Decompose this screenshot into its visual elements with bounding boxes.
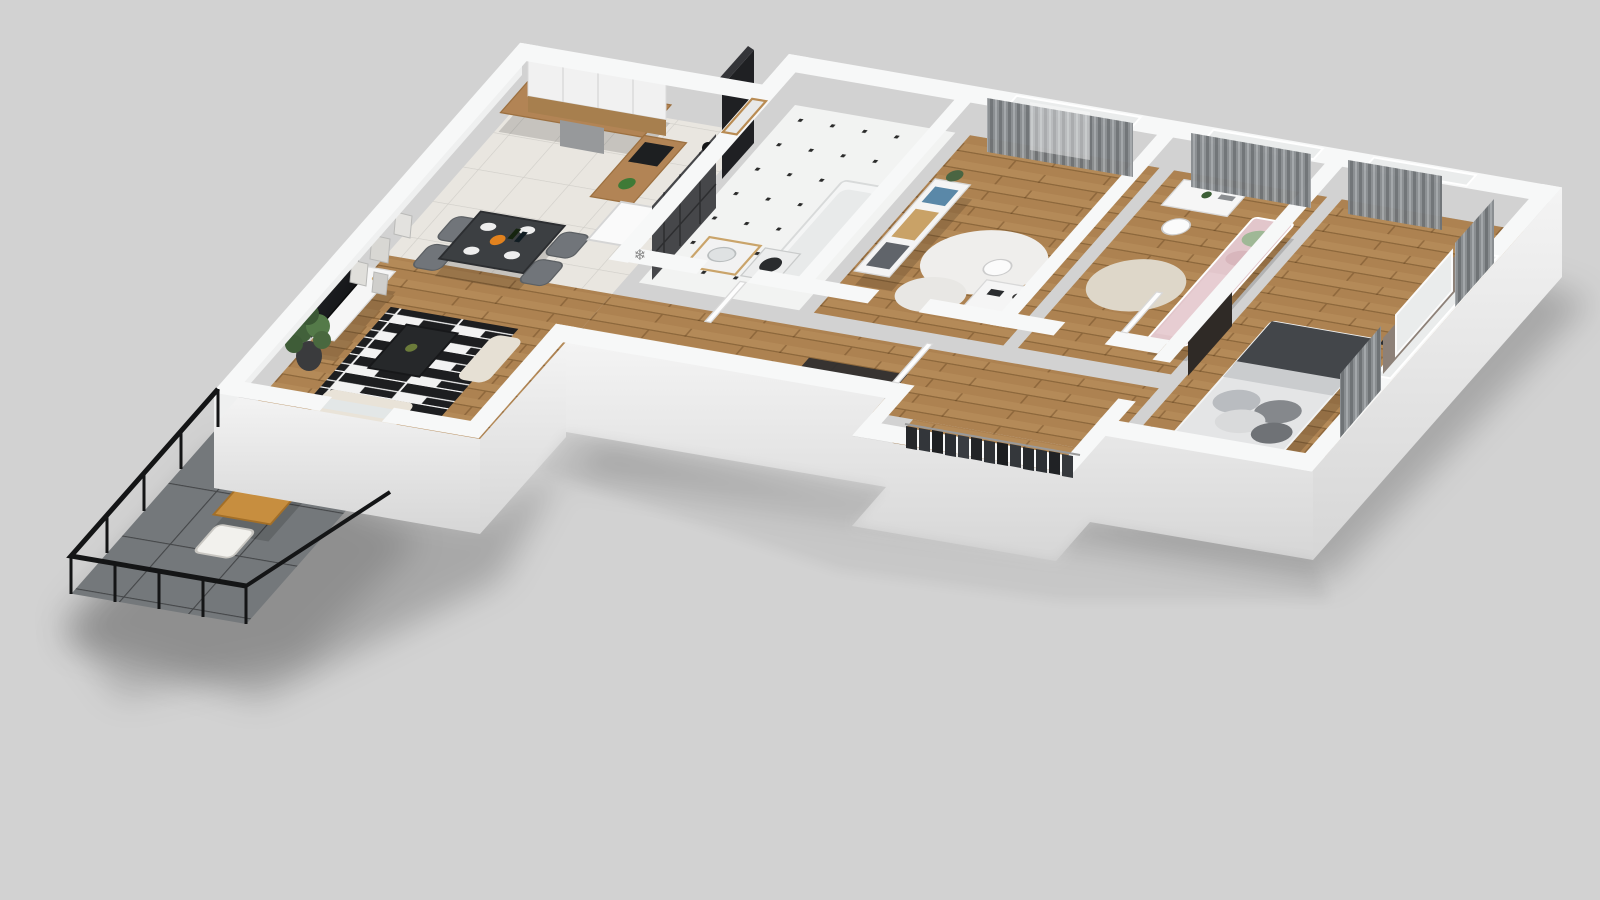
fridge-snowflake-icon: ❄ xyxy=(634,246,647,264)
floorplan-render: ❄ xyxy=(0,0,1600,900)
bedroom1-sheer xyxy=(1030,102,1090,160)
floorplan-scene: ❄ xyxy=(0,0,1600,900)
